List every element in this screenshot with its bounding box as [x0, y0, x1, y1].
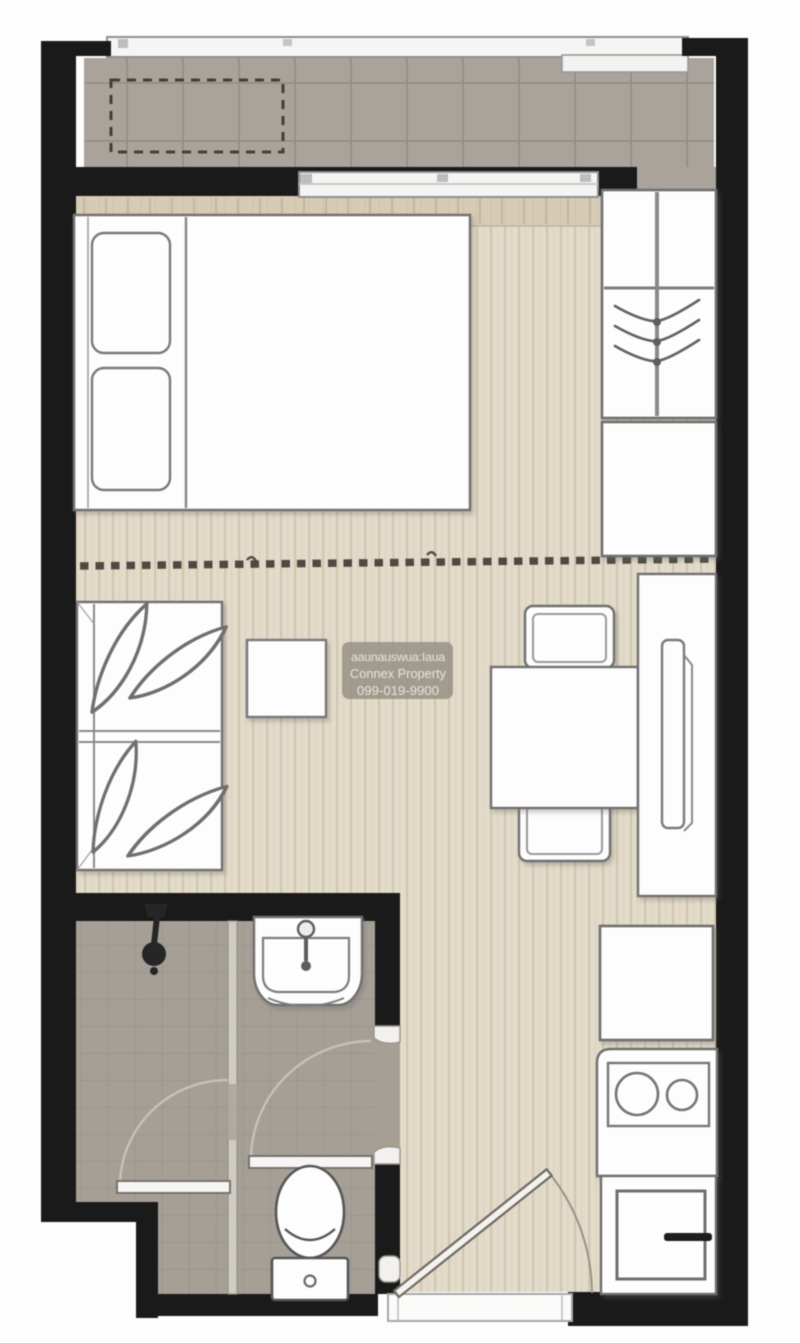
- svg-text:099-019-9900: 099-019-9900: [357, 683, 439, 698]
- svg-text:aaunauswua:Iaua: aaunauswua:Iaua: [351, 650, 445, 664]
- svg-text:Connex Property: Connex Property: [350, 666, 447, 681]
